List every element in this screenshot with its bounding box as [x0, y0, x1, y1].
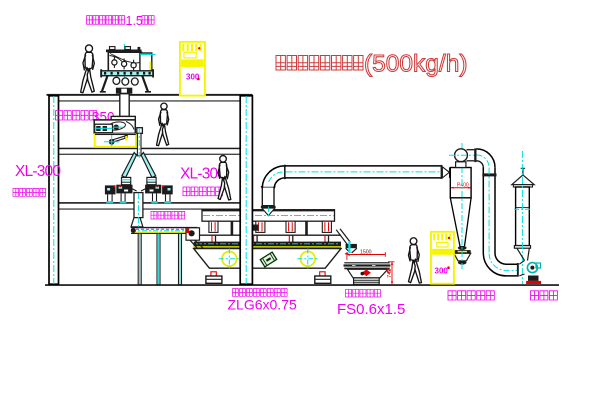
- svg-text:ZLG6x0.75: ZLG6x0.75: [228, 297, 297, 313]
- svg-text:300: 300: [186, 73, 200, 82]
- svg-text:FS0.6x1.5: FS0.6x1.5: [337, 301, 405, 318]
- svg-text:745: 745: [387, 269, 393, 278]
- svg-text:1.5: 1.5: [126, 14, 143, 28]
- svg-text:300: 300: [435, 267, 449, 276]
- svg-text:P400: P400: [457, 182, 469, 188]
- svg-text:XL-300: XL-300: [15, 163, 61, 180]
- svg-text:(500kg/h): (500kg/h): [364, 51, 468, 78]
- svg-text:1500: 1500: [360, 249, 372, 255]
